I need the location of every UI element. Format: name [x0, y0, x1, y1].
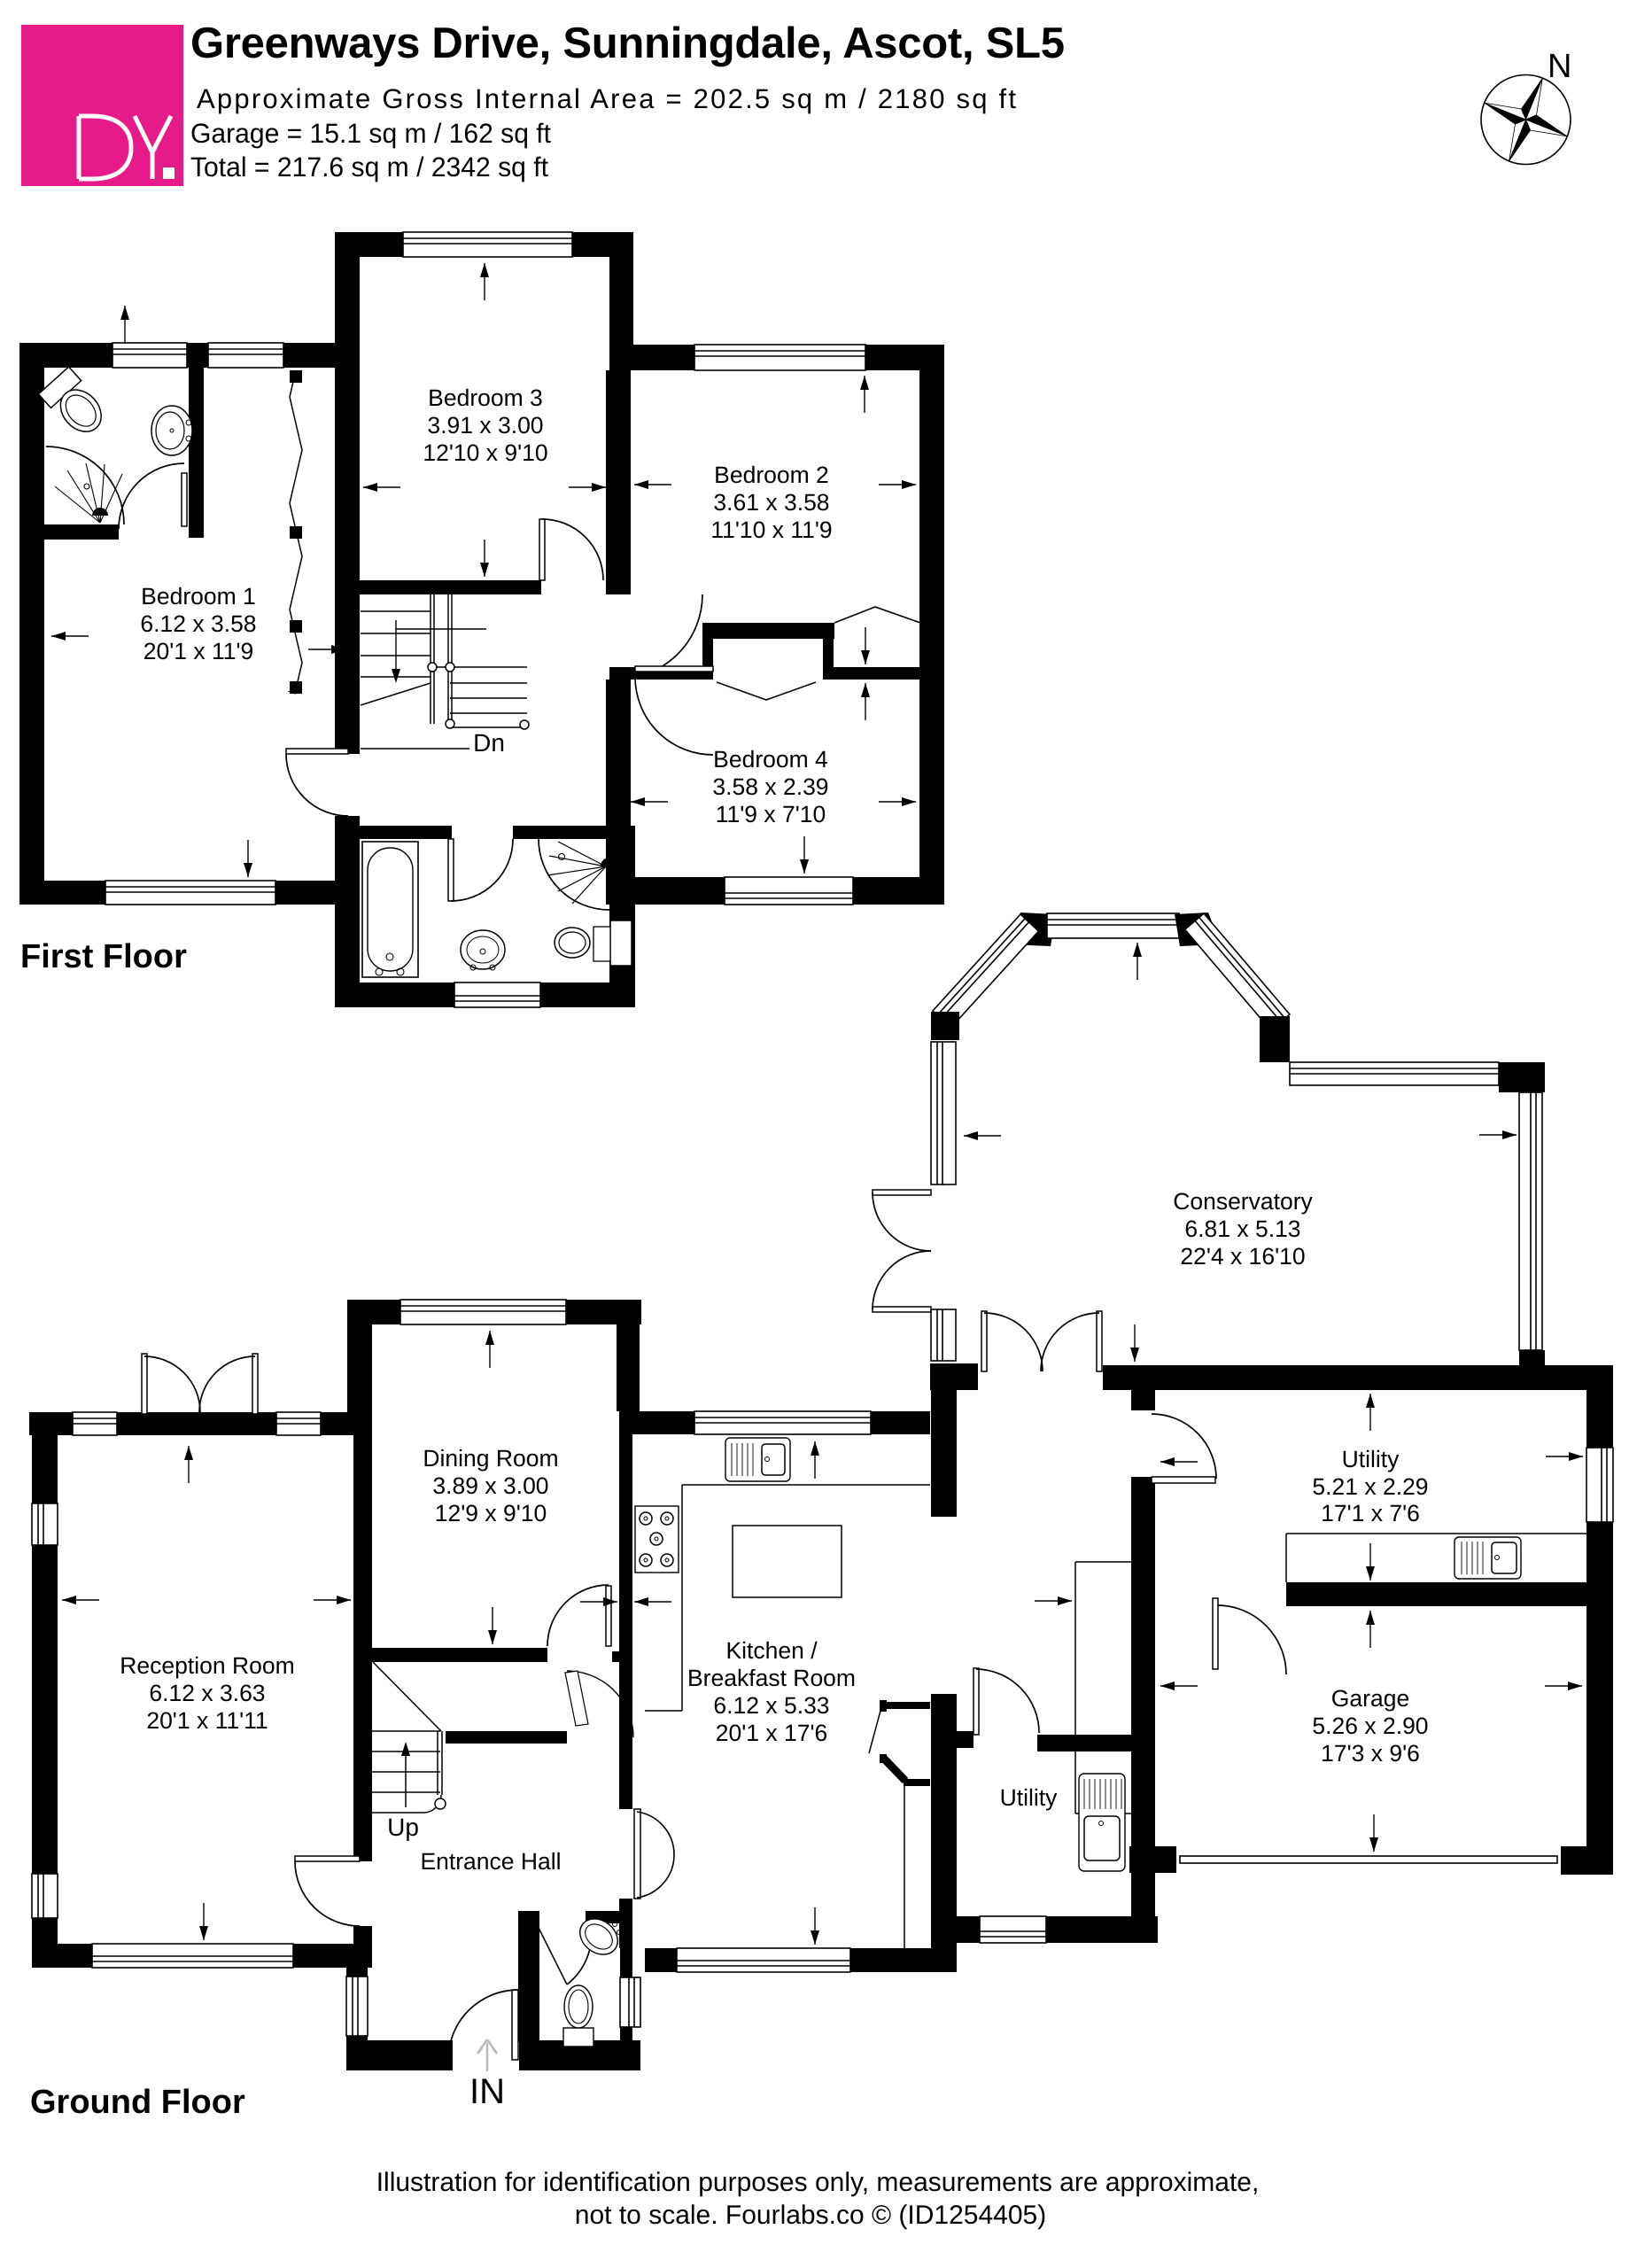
svg-text:3.91 x 3.00: 3.91 x 3.00 — [427, 412, 543, 439]
svg-text:6.12 x 3.63: 6.12 x 3.63 — [149, 1680, 265, 1706]
svg-text:Utility: Utility — [1342, 1446, 1400, 1472]
svg-text:6.12 x 3.58: 6.12 x 3.58 — [140, 610, 256, 637]
svg-text:First Floor: First Floor — [20, 938, 187, 975]
svg-text:Bedroom 1: Bedroom 1 — [141, 583, 256, 610]
svg-text:Bedroom 2: Bedroom 2 — [714, 462, 829, 488]
svg-text:Kitchen /: Kitchen / — [725, 1637, 818, 1664]
svg-text:11'9 x 7'10: 11'9 x 7'10 — [716, 801, 826, 827]
svg-text:Ground Floor: Ground Floor — [30, 2084, 245, 2121]
svg-text:20'1 x 17'6: 20'1 x 17'6 — [716, 1720, 828, 1746]
svg-text:3.58 x 2.39: 3.58 x 2.39 — [712, 773, 828, 800]
svg-text:20'1 x 11'9: 20'1 x 11'9 — [144, 638, 254, 664]
svg-text:Up: Up — [387, 1814, 419, 1841]
svg-text:12'9 x 9'10: 12'9 x 9'10 — [435, 1500, 547, 1526]
svg-text:Approximate Gross Internal Are: Approximate Gross Internal Area = 202.5 … — [197, 83, 1016, 114]
svg-text:17'1 x 7'6: 17'1 x 7'6 — [1321, 1500, 1420, 1526]
svg-text:Entrance Hall: Entrance Hall — [420, 1848, 561, 1875]
svg-text:11'10 x 11'9: 11'10 x 11'9 — [710, 517, 832, 543]
svg-text:22'4 x 16'10: 22'4 x 16'10 — [1180, 1243, 1305, 1270]
svg-text:Bedroom 4: Bedroom 4 — [713, 746, 828, 773]
svg-text:5.26 x 2.90: 5.26 x 2.90 — [1312, 1713, 1428, 1739]
svg-text:IN: IN — [469, 2072, 505, 2111]
svg-text:Breakfast Room: Breakfast Room — [687, 1665, 856, 1691]
svg-text:3.89 x 3.00: 3.89 x 3.00 — [432, 1472, 548, 1499]
svg-text:Dn: Dn — [473, 729, 505, 757]
svg-text:3.61 x 3.58: 3.61 x 3.58 — [713, 489, 829, 516]
svg-text:12'10 x 9'10: 12'10 x 9'10 — [423, 439, 547, 466]
svg-text:Utility: Utility — [1000, 1784, 1059, 1811]
svg-text:20'1 x 11'11: 20'1 x 11'11 — [146, 1707, 268, 1734]
svg-text:N: N — [1548, 48, 1571, 85]
svg-text:6.12 x 5.33: 6.12 x 5.33 — [713, 1692, 829, 1719]
svg-text:Garage = 15.1 sq m / 162 sq ft: Garage = 15.1 sq m / 162 sq ft — [190, 118, 551, 149]
svg-text:17'3 x 9'6: 17'3 x 9'6 — [1321, 1740, 1420, 1767]
svg-text:Greenways Drive, Sunningdale,: Greenways Drive, Sunningdale, Ascot, SL5 — [190, 19, 1065, 67]
svg-text:Garage: Garage — [1331, 1685, 1409, 1712]
svg-text:5.21 x 2.29: 5.21 x 2.29 — [1312, 1473, 1428, 1500]
svg-text:Reception Room: Reception Room — [120, 1652, 294, 1679]
svg-text:Total = 217.6 sq m / 2342 sq f: Total = 217.6 sq m / 2342 sq ft — [190, 151, 548, 183]
svg-text:Conservatory: Conservatory — [1173, 1188, 1313, 1215]
svg-text:Illustration for identificatio: Illustration for identification purposes… — [376, 2168, 1260, 2197]
svg-text:not to scale. Fourlabs.co © (I: not to scale. Fourlabs.co © (ID1254405) — [575, 2201, 1046, 2230]
svg-text:6.81 x 5.13: 6.81 x 5.13 — [1184, 1216, 1300, 1242]
svg-text:Dining Room: Dining Room — [423, 1445, 558, 1472]
svg-text:Bedroom 3: Bedroom 3 — [428, 384, 543, 411]
